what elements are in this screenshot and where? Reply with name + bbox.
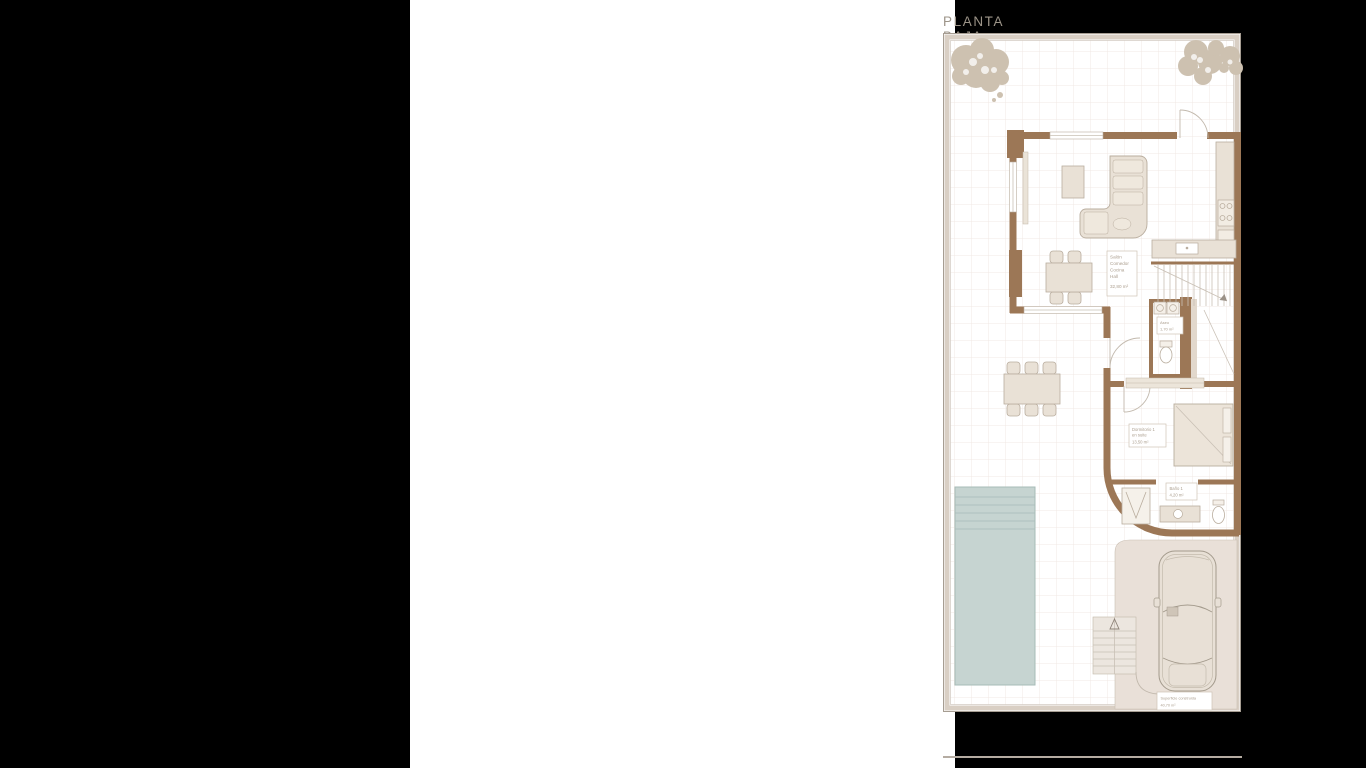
room-area: 4,20 m² (1170, 493, 1185, 498)
room-label-dormitorio: Dormitorio 1 en suite 13,50 m² (1129, 424, 1166, 447)
room-name: en suite (1132, 433, 1147, 438)
room-name: Dormitorio 1 (1132, 427, 1155, 432)
room-label-salon: Salón Comedor Cocina Hall 32,80 m² (1107, 251, 1137, 296)
tv-unit (1023, 152, 1028, 224)
closet (1126, 378, 1204, 388)
toilet-icon (1213, 500, 1225, 524)
room-area: 13,50 m² (1132, 440, 1149, 445)
room-area: 1,70 m² (1160, 327, 1174, 332)
toilet-icon (1160, 341, 1172, 363)
room-name: Baño 1 (1170, 486, 1184, 491)
room-name: Comedor (1110, 261, 1129, 266)
outdoor-dining-table (1004, 362, 1060, 416)
floorplan-drawing: Salón Comedor Cocina Hall 32,80 m² Aseo … (943, 33, 1243, 712)
shower (1122, 488, 1150, 524)
room-name: Salón (1110, 255, 1122, 260)
pool (955, 487, 1035, 685)
bed (1174, 404, 1233, 466)
room-label-garaje: Superficie construida 40,70 m² (1157, 692, 1212, 710)
room-label-bano: Baño 1 4,20 m² (1166, 483, 1197, 500)
cabinet (1062, 166, 1084, 198)
room-area: 40,70 m² (1161, 704, 1177, 708)
room-name: Superficie construida (1161, 697, 1197, 701)
room-label-aseo: Aseo 1,70 m² (1157, 317, 1183, 334)
room-name: Hall (1110, 274, 1118, 279)
room-area: 32,80 m² (1110, 284, 1129, 289)
document-page: PLANTA BAJA (410, 0, 955, 768)
sink-icon (1176, 243, 1198, 254)
footer-divider (943, 756, 1242, 758)
room-name: Cocina (1110, 268, 1125, 273)
vanity-sink (1160, 506, 1200, 522)
screen: { "title": "PLANTA BAJA", "rooms": { "sa… (0, 0, 1366, 768)
car-icon (1154, 551, 1221, 691)
room-name: Aseo (1160, 320, 1170, 325)
